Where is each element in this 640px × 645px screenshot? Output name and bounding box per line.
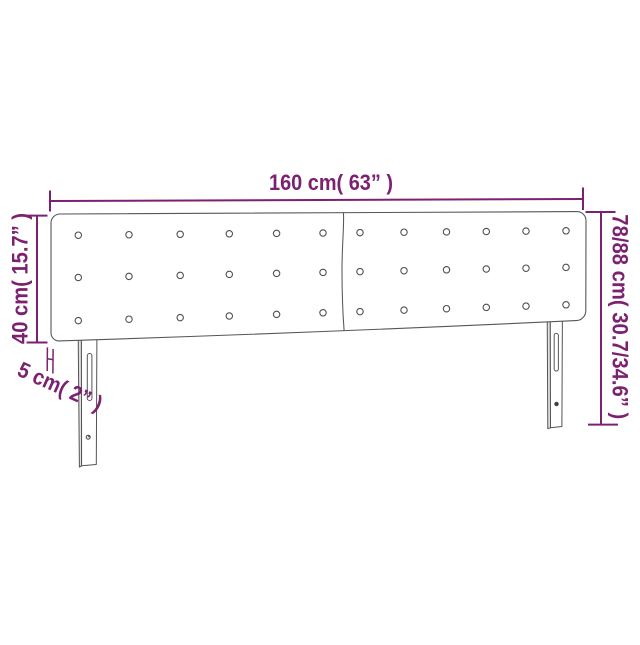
svg-text:160 cm( 63” ): 160 cm( 63” ) [269,170,393,195]
svg-text:40 cm( 15.7” ): 40 cm( 15.7” ) [8,213,33,344]
svg-text:78/88 cm( 30.7/34.6” ): 78/88 cm( 30.7/34.6” ) [608,214,633,419]
